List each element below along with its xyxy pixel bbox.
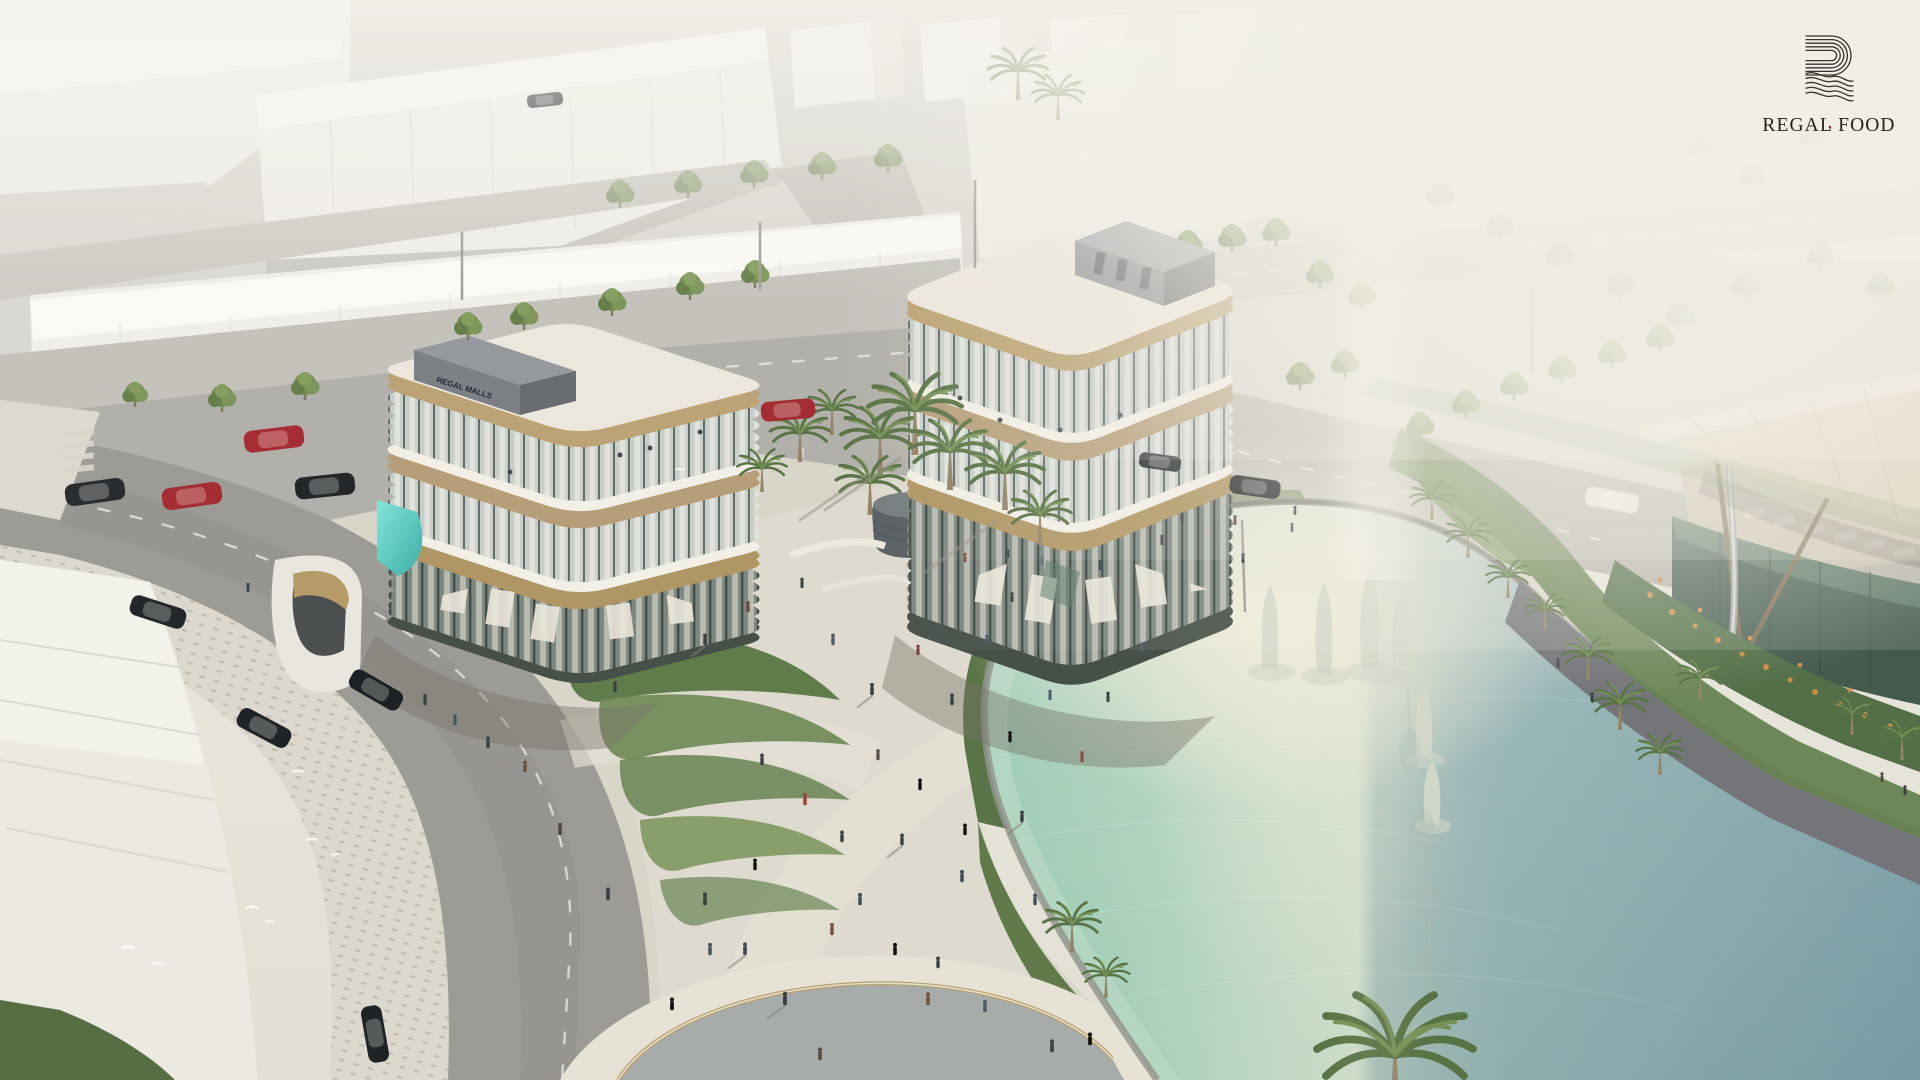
svg-text:REGAL FOOD: REGAL FOOD [1762, 115, 1895, 136]
